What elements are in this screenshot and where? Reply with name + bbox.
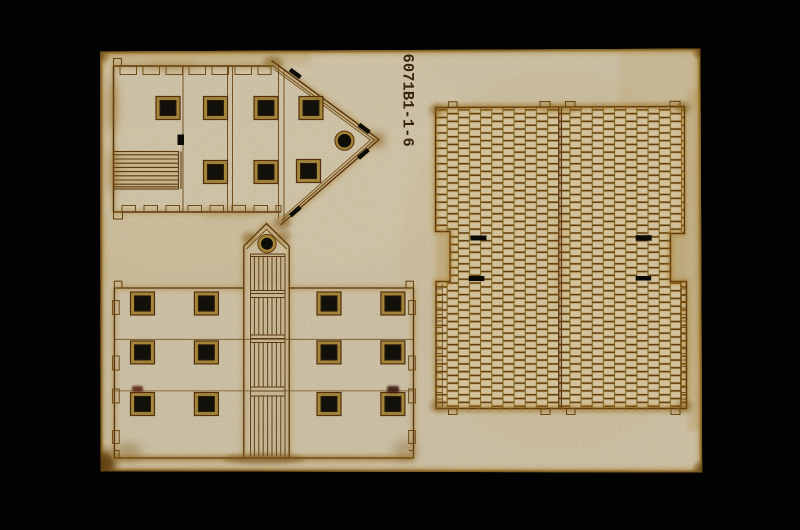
svg-text:6071B1-1-6: 6071B1-1-6	[399, 54, 417, 147]
